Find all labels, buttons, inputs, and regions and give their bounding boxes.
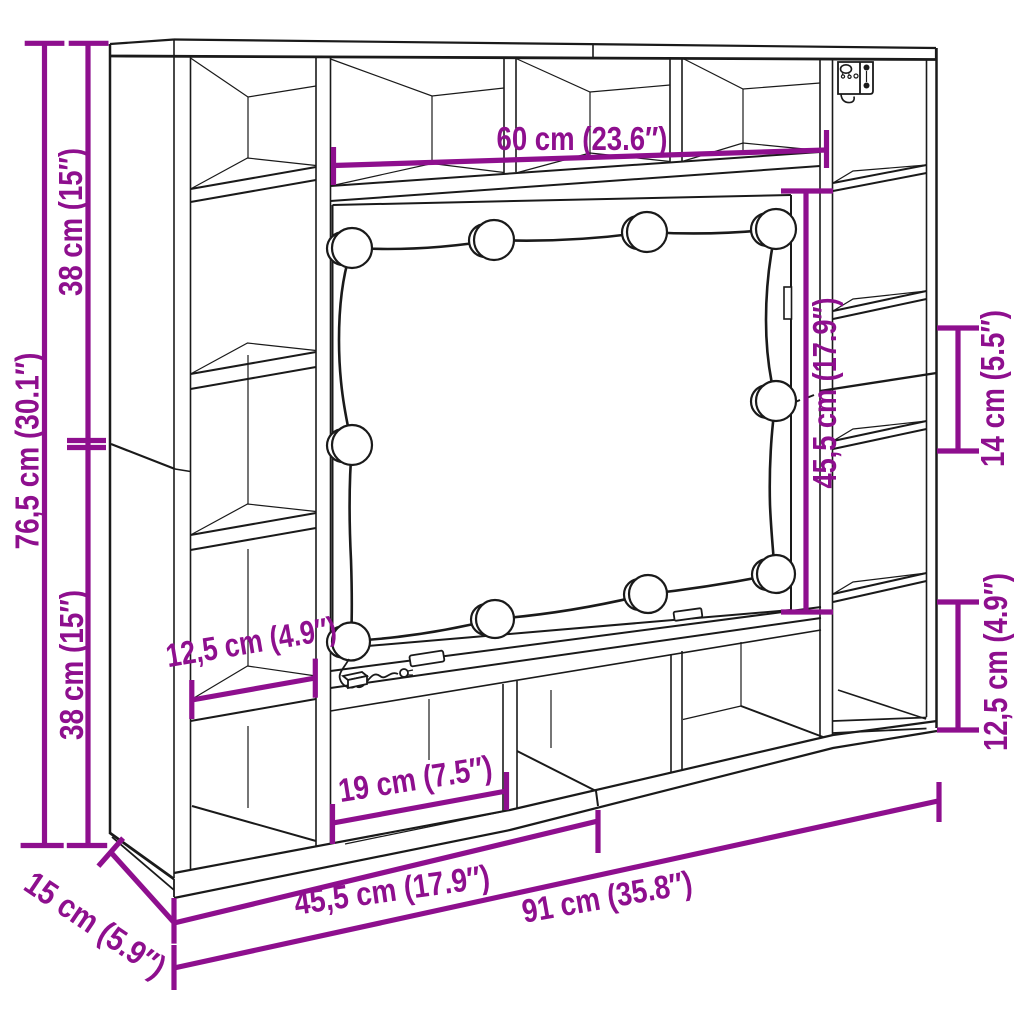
svg-text:14 cm (5.5″): 14 cm (5.5″) [974, 310, 1011, 467]
svg-text:12,5 cm (4.9″): 12,5 cm (4.9″) [977, 573, 1014, 751]
svg-text:38 cm (15″): 38 cm (15″) [53, 590, 90, 740]
svg-text:45,5 cm (17.9″): 45,5 cm (17.9″) [806, 298, 843, 489]
svg-text:60 cm (23.6″): 60 cm (23.6″) [497, 120, 668, 157]
svg-text:76,5 cm (30.1″): 76,5 cm (30.1″) [9, 353, 46, 550]
svg-text:38 cm (15″): 38 cm (15″) [52, 148, 89, 296]
